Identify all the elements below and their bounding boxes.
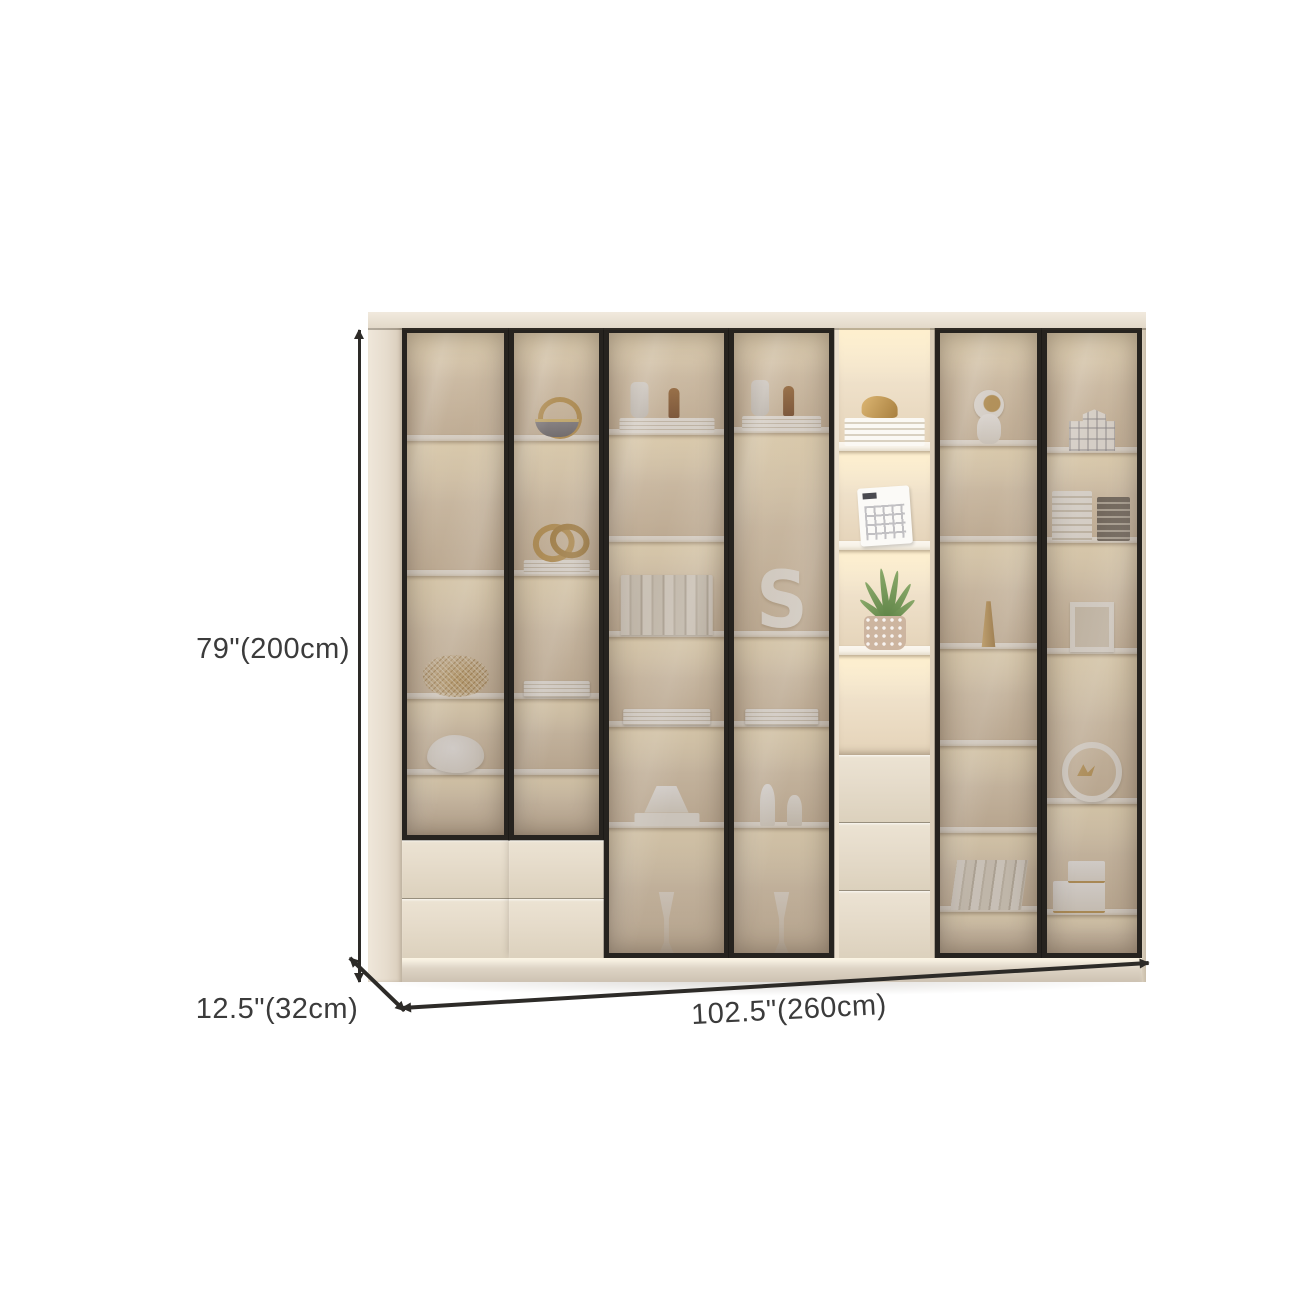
glass-door — [729, 328, 834, 958]
drawer-front — [834, 755, 935, 822]
section-1 — [402, 328, 509, 958]
drawer-front — [402, 898, 509, 958]
glass-door — [402, 328, 509, 840]
glass-door — [604, 328, 729, 958]
glass-door — [935, 328, 1042, 958]
cabinet-right-edge — [1142, 326, 1146, 982]
section-3 — [604, 328, 729, 958]
decor-plant — [849, 564, 921, 650]
drawer-front — [834, 822, 935, 890]
bookcase: S — [368, 312, 1146, 982]
section-interior — [834, 328, 935, 958]
height-dimension-label: 79"(200cm) — [146, 633, 350, 666]
depth-dimension-label: 12.5"(32cm) — [166, 993, 388, 1026]
section-7 — [1042, 328, 1142, 958]
section-2 — [509, 328, 604, 958]
section-6 — [935, 328, 1042, 958]
drawer-front — [509, 840, 604, 899]
glass-door — [1042, 328, 1142, 958]
shelf-compartment — [834, 652, 935, 755]
drawer-front — [509, 898, 604, 958]
product-dimension-image: S 79"(200cm) 12.5"(32cm) 102.5"(260cm) — [0, 0, 1300, 1300]
cabinet-side-panel — [368, 322, 402, 982]
drawer-unit — [509, 840, 604, 958]
shelf-compartment — [834, 328, 935, 448]
section-4: S — [729, 328, 834, 958]
height-dimension-arrow — [358, 330, 361, 982]
drawer-front — [834, 890, 935, 958]
drawer-unit — [402, 840, 509, 958]
cabinet-sections: S — [402, 328, 1142, 958]
plant-pot — [864, 616, 906, 650]
shelf-compartment — [834, 448, 935, 546]
shelf-compartment — [834, 547, 935, 652]
drawer-unit — [834, 755, 935, 959]
decor-calendar — [857, 485, 913, 546]
glass-door — [509, 328, 604, 840]
cabinet-top-panel — [368, 312, 1146, 328]
section-5 — [834, 328, 935, 958]
drawer-front — [402, 840, 509, 899]
decor-bird-books — [844, 418, 925, 446]
